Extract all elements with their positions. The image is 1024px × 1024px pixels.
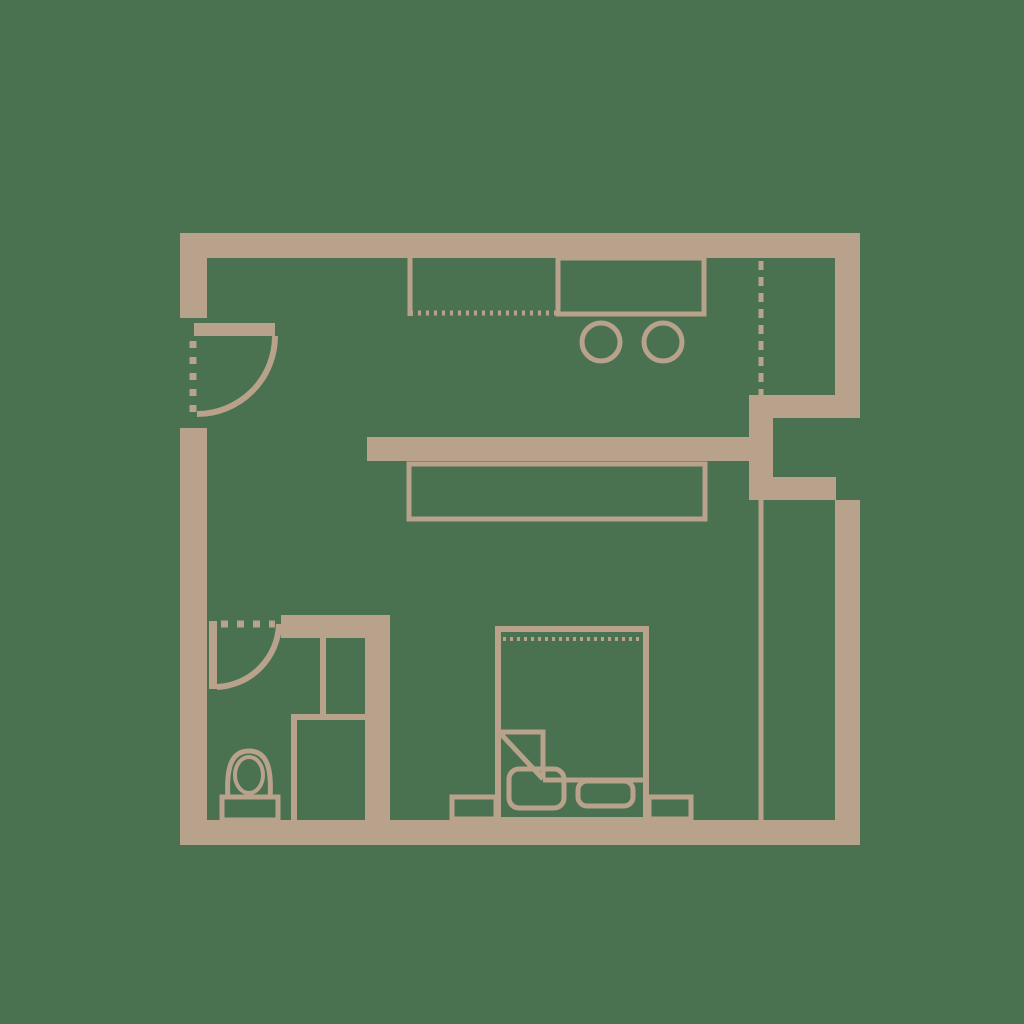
bottom-wall [180, 820, 860, 845]
pillow-right [578, 781, 633, 806]
duvet-fold-corner [499, 732, 543, 779]
toilet-seat [235, 757, 263, 793]
nightstand-right [649, 797, 691, 819]
kitchen-island-bar [367, 437, 749, 461]
counter-right-section [558, 258, 704, 314]
right-wall-lower [835, 500, 860, 845]
burner-right [644, 323, 682, 361]
kitchen-group [410, 258, 704, 361]
toilet-tank [222, 797, 278, 820]
bathroom-group [209, 621, 365, 820]
toilet [222, 751, 278, 820]
top-wall [180, 233, 860, 258]
bathroom-door-leaf [209, 621, 217, 689]
floor-plan-drawing [0, 0, 1024, 1024]
dining-table [409, 464, 705, 519]
right-wall-upper [835, 233, 860, 418]
left-wall-lower [180, 428, 207, 845]
bathroom-partition-wall [365, 638, 390, 820]
entrance-door-swing-arc [197, 336, 275, 414]
left-wall-upper [180, 233, 207, 318]
bathroom-door-swing-arc [217, 624, 279, 687]
nightstand-left [452, 797, 496, 819]
bed-group [452, 629, 691, 820]
island-table-group [367, 437, 749, 519]
entrance-door [193, 323, 275, 415]
bathroom-top-wall [281, 615, 390, 638]
double-bed [498, 629, 646, 820]
burner-left [582, 323, 620, 361]
entrance-door-leaf [194, 323, 275, 336]
floor-plan-canvas [0, 0, 1024, 1024]
window-recess-connector [749, 395, 773, 500]
